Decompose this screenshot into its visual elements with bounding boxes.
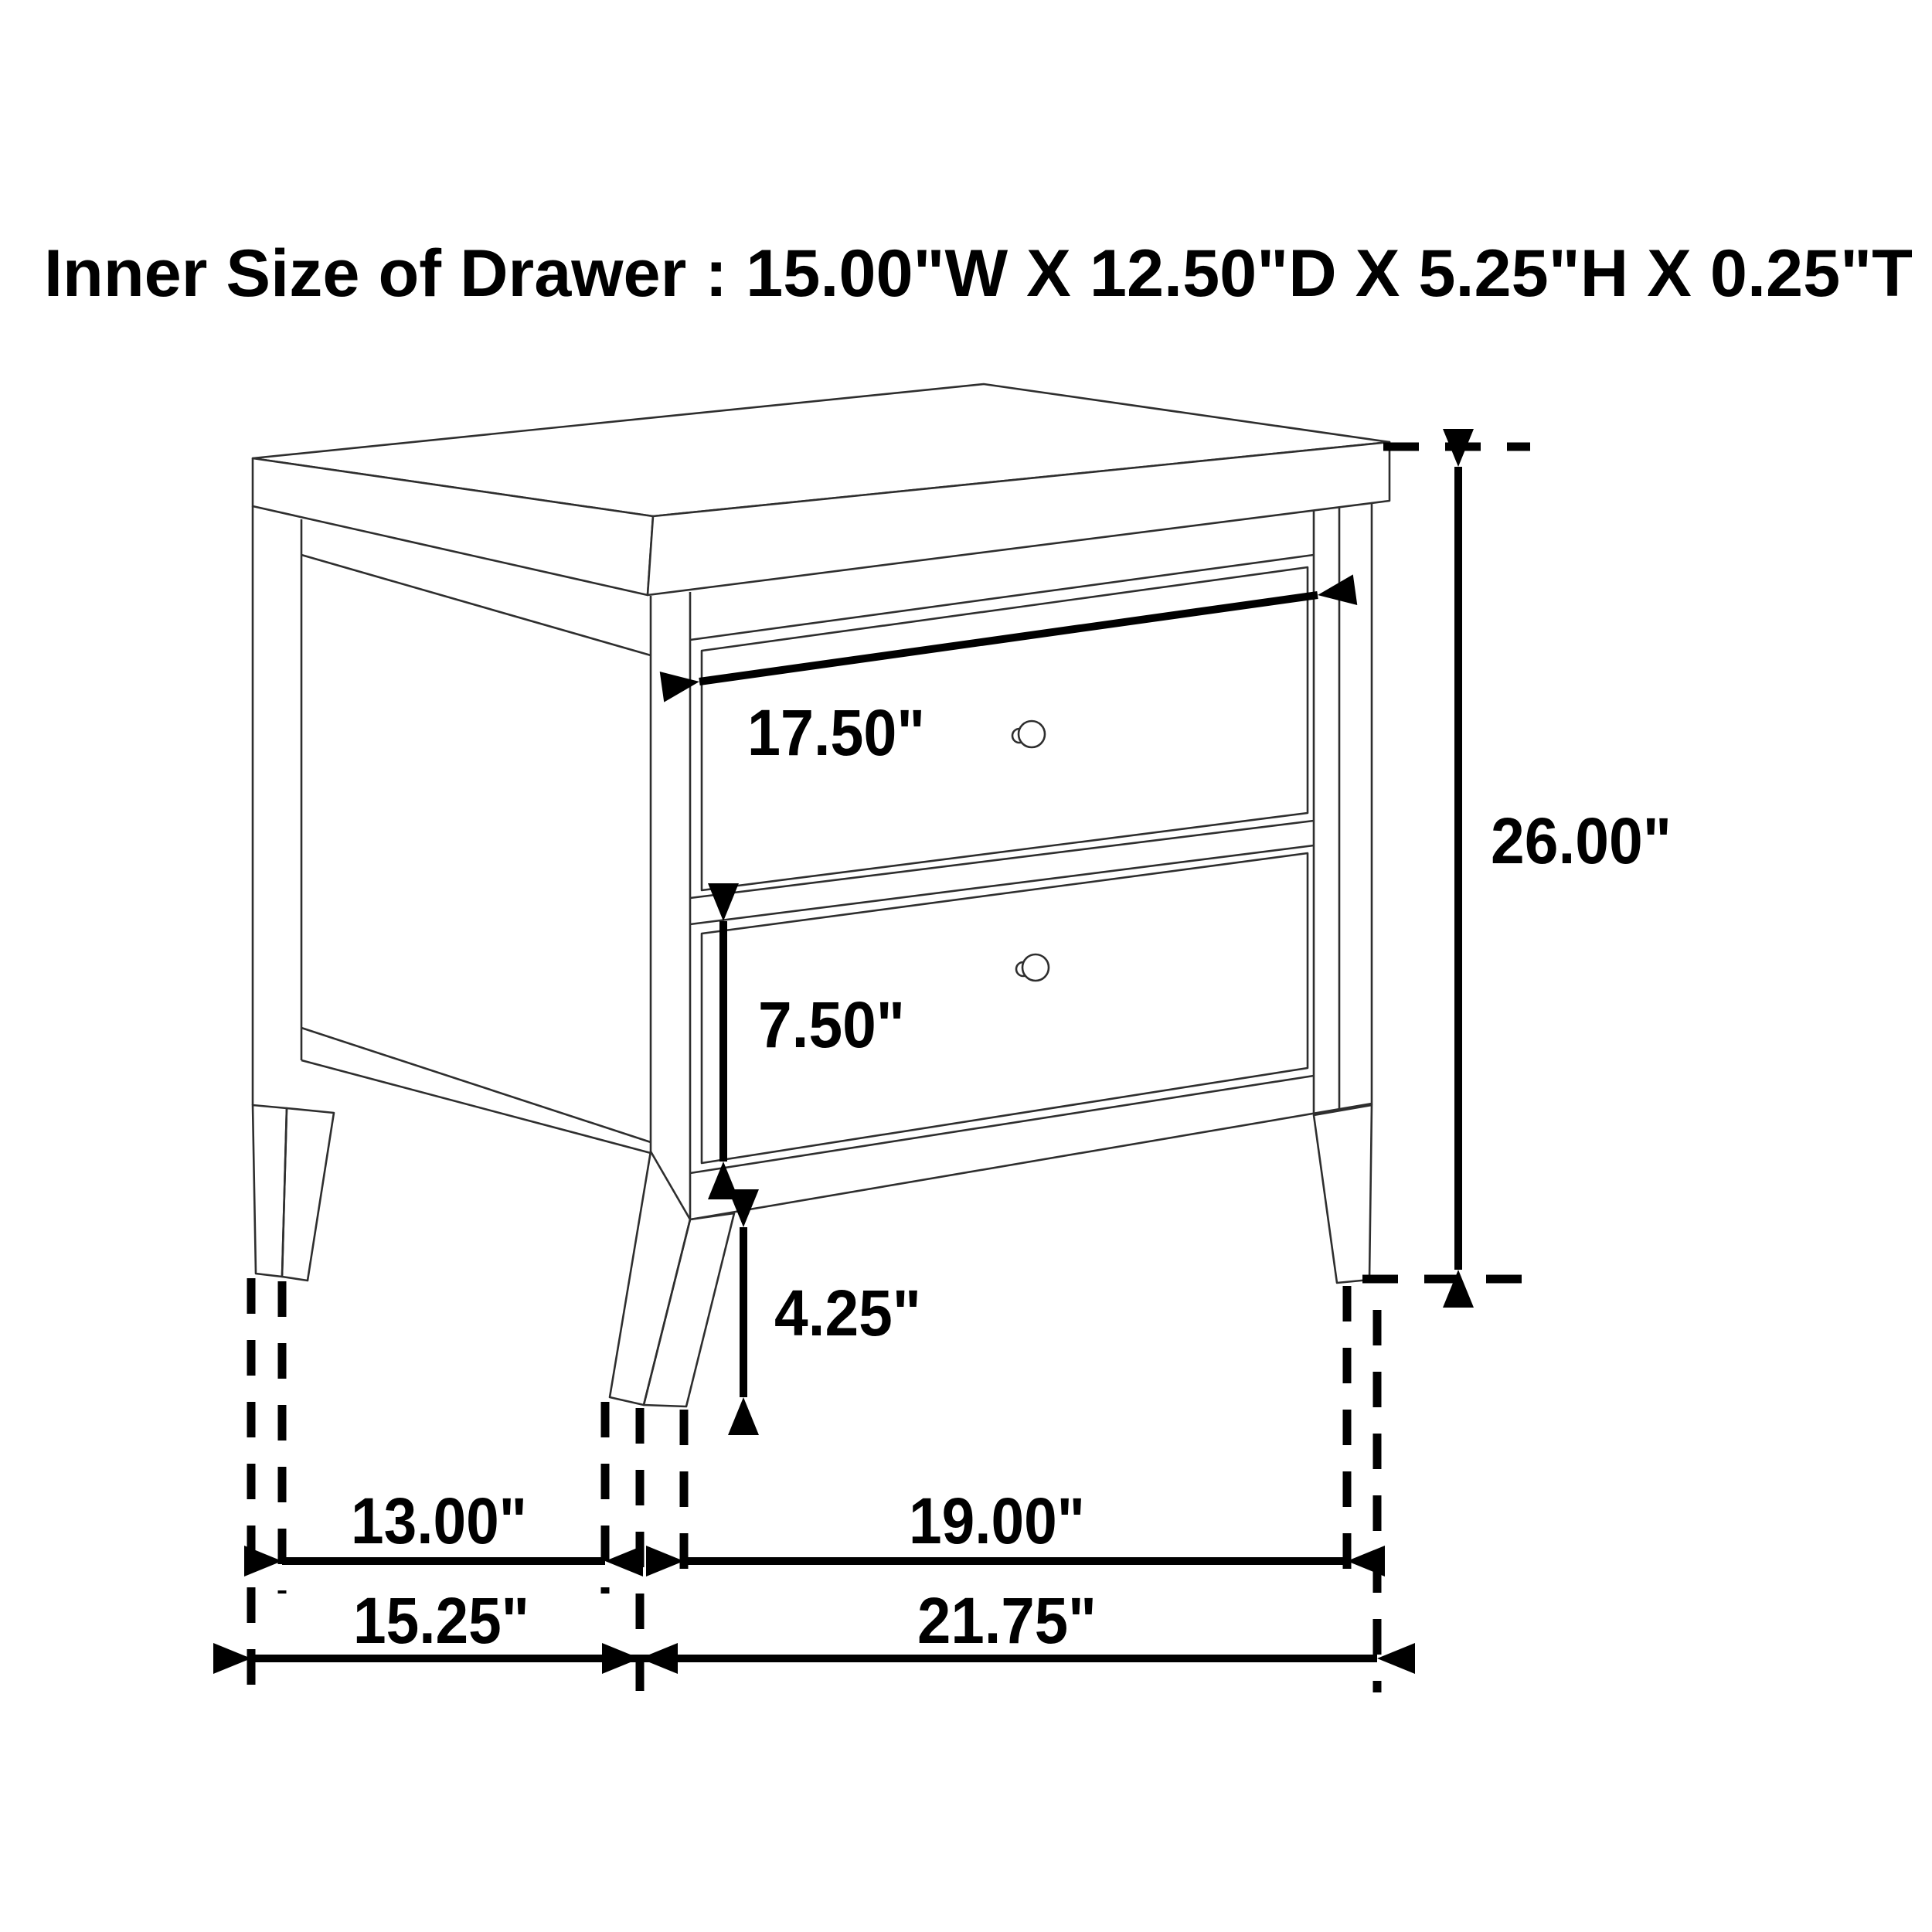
drawer-height-label: 7.50" xyxy=(758,988,905,1061)
front-left-leg-front-face xyxy=(644,1213,734,1406)
tabletop xyxy=(253,384,1389,595)
diagram-canvas: Inner Size of Drawer : 15.00"W X 12.50"D… xyxy=(0,0,1932,1932)
bottom-rail-top-edge xyxy=(690,1076,1314,1173)
overall-height-label: 26.00" xyxy=(1491,804,1672,877)
back-left-leg-front-face xyxy=(282,1108,334,1281)
mid-rail-top-edge xyxy=(690,821,1314,898)
left-side-panel xyxy=(253,506,651,1153)
bottom-rail-bottom-edge xyxy=(690,1104,1372,1219)
dimension-diagram-page: Inner Size of Drawer : 15.00"W X 12.50"D… xyxy=(0,0,1932,1932)
side-bottom-rail-bottom-edge xyxy=(301,1060,651,1153)
overall-depth-label: 15.25" xyxy=(353,1584,529,1657)
front-right-leg xyxy=(1314,1105,1372,1283)
front-left-leg-side-face xyxy=(610,1151,690,1405)
dimension-annotations: 17.50" 26.00" 7.50" 4.25" 13.00" 19.00" … xyxy=(251,447,1672,1692)
back-left-leg-side-face xyxy=(253,1105,287,1277)
side-bottom-rail-top-edge xyxy=(301,1028,651,1142)
depth-between-legs-label: 13.00" xyxy=(351,1485,527,1557)
width-between-legs-label: 19.00" xyxy=(909,1485,1085,1557)
drawer-width-label: 17.50" xyxy=(747,696,925,769)
legs xyxy=(253,1105,1372,1406)
nightstand-drawing xyxy=(253,384,1389,1406)
mid-rail-bottom-edge xyxy=(690,845,1314,924)
page-title: Inner Size of Drawer : 15.00"W X 12.50"D… xyxy=(44,236,1913,311)
drawer-2-knob xyxy=(1022,954,1049,981)
drawer-1-knob xyxy=(1019,721,1045,747)
floor-clearance-label: 4.25" xyxy=(774,1277,921,1349)
overall-width-label: 21.75" xyxy=(917,1584,1097,1657)
